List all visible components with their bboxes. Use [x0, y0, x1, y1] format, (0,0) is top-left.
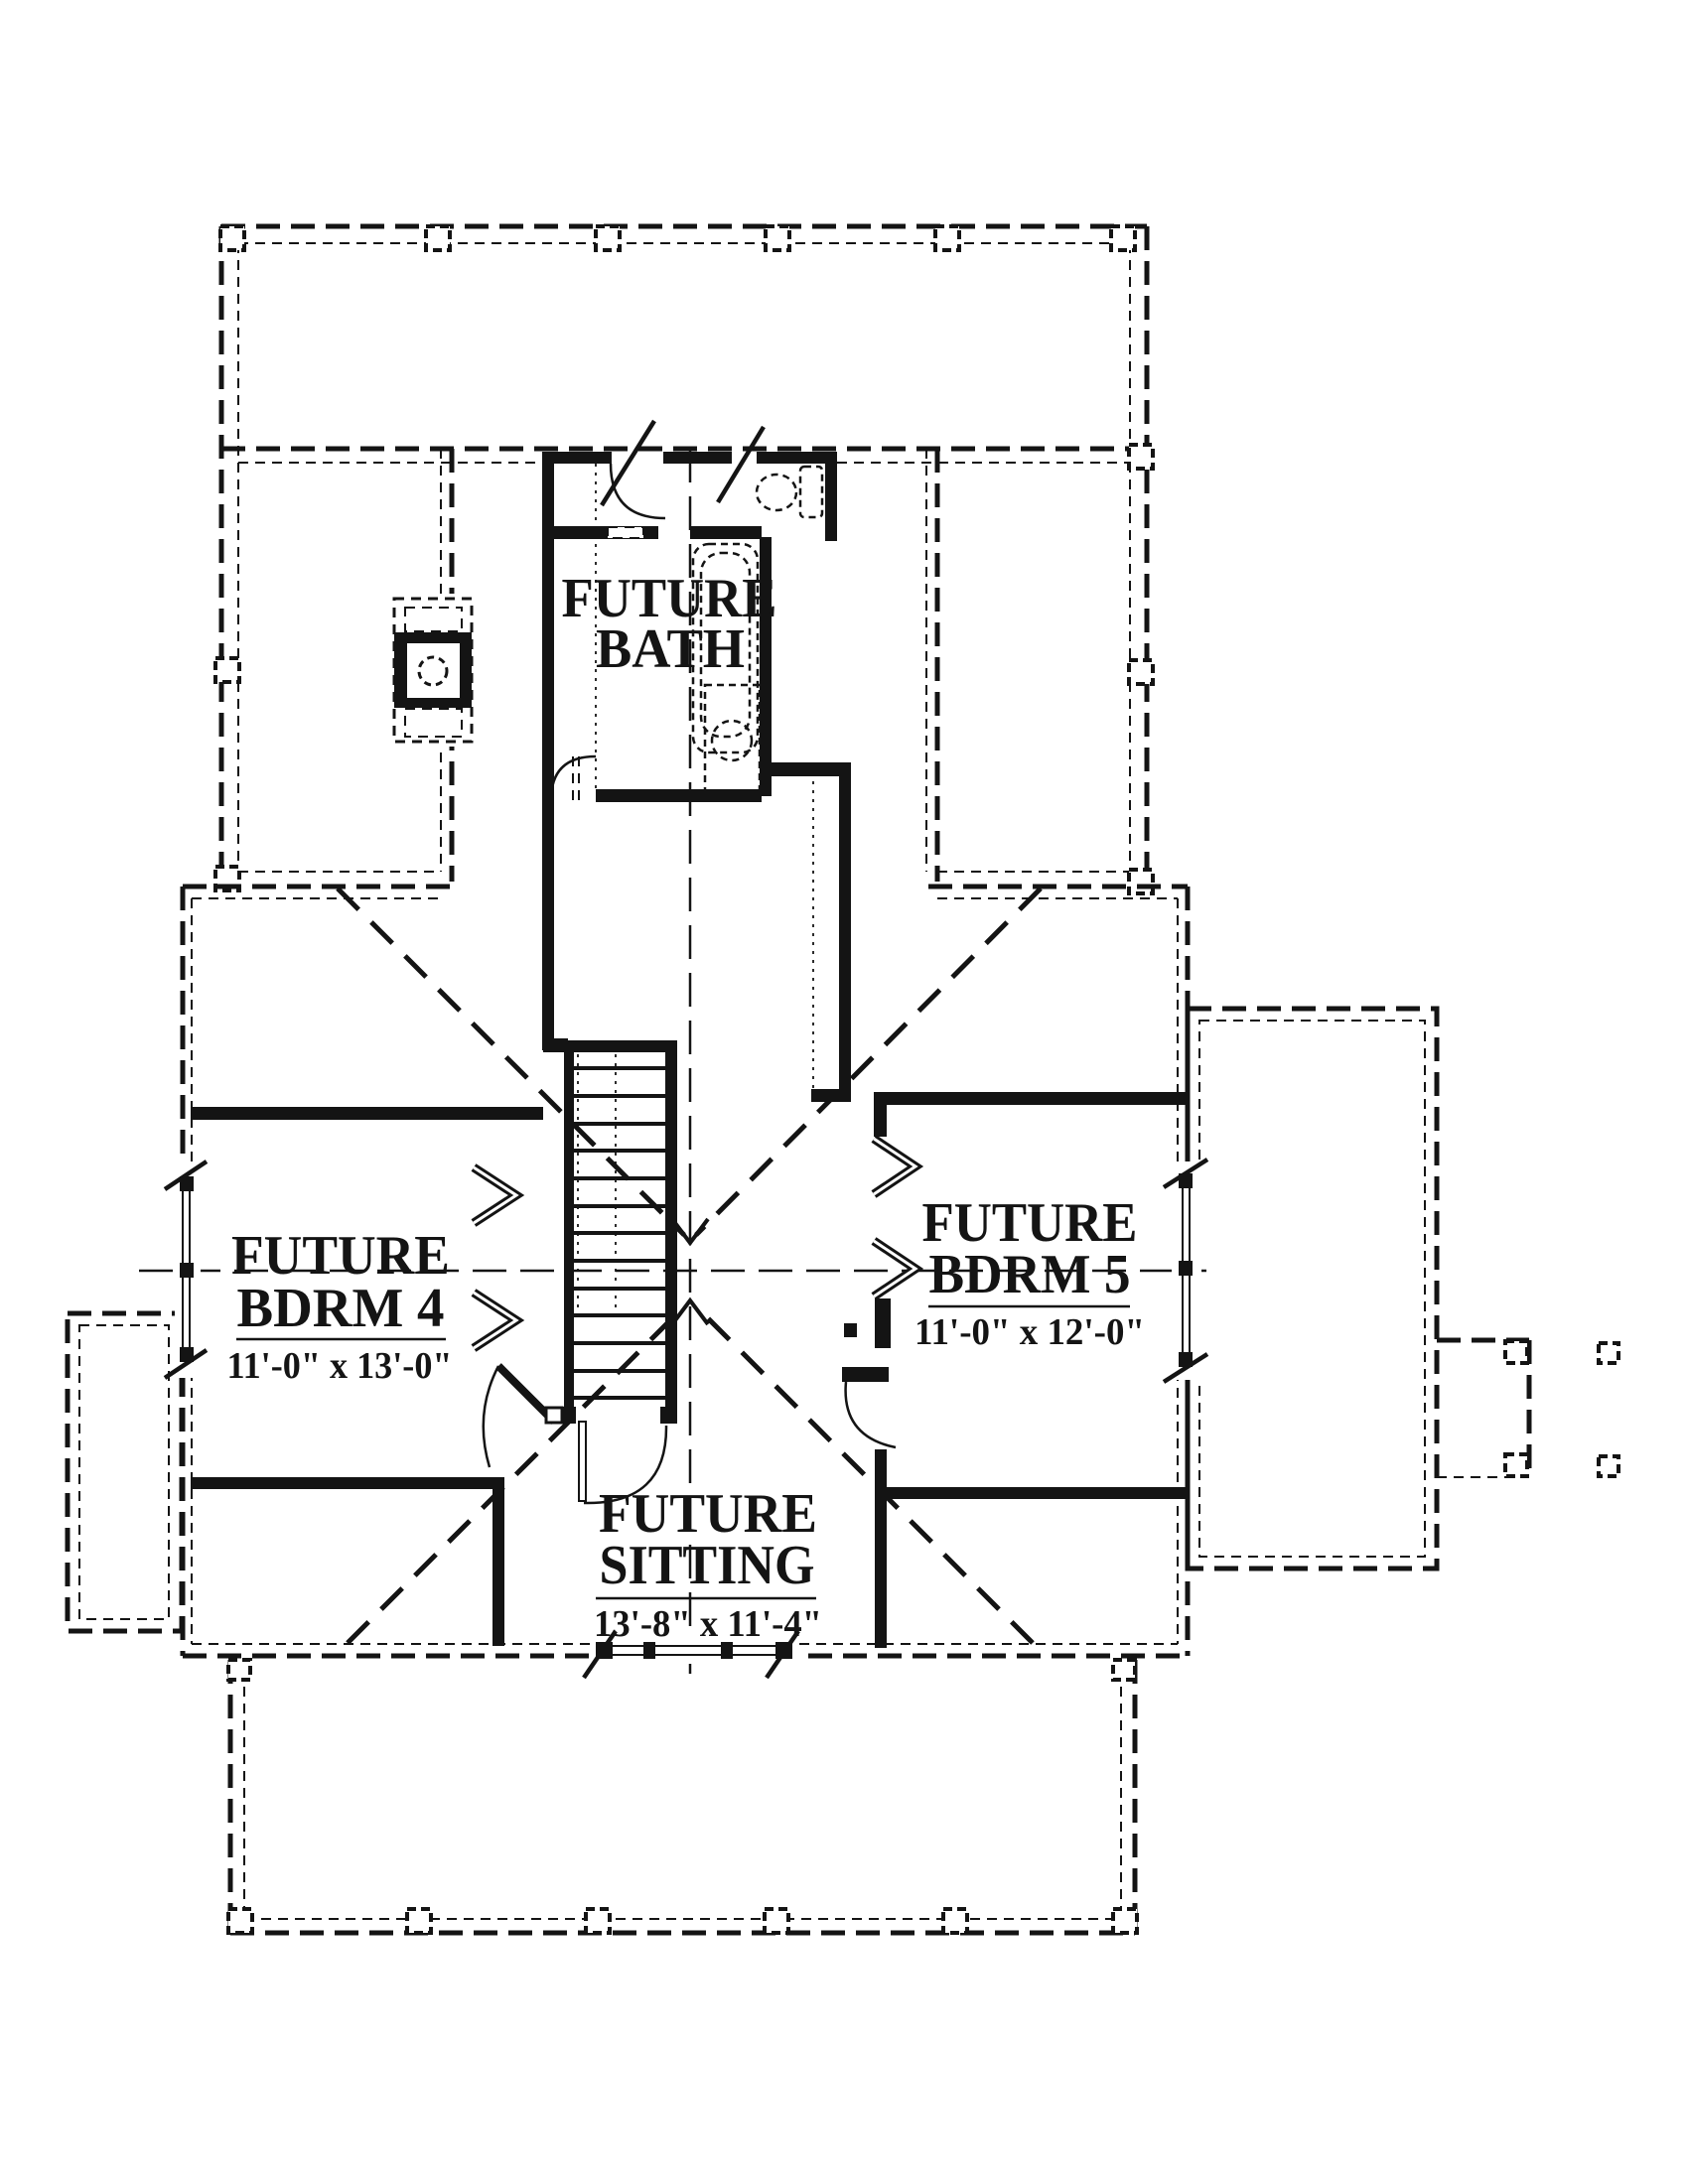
- bdrm5-label: FUTURE BDRM 5 11'-0" x 12'-0": [914, 1192, 1145, 1353]
- upper-porch-outline: [221, 226, 1147, 887]
- bdrm4-label: FUTURE BDRM 4 11'-0" x 13'-0": [227, 1225, 453, 1387]
- lower-porch-posts: [228, 1660, 1137, 1933]
- right-bumpout-outline: [1188, 1009, 1437, 1569]
- bath-label-line2: BATH: [596, 618, 745, 680]
- landing-door: [551, 756, 596, 800]
- bdrm5-dims: 11'-0" x 12'-0": [914, 1311, 1145, 1353]
- bath-entry-door: [602, 421, 764, 518]
- bdrm4-door: [484, 1366, 562, 1467]
- bdrm4-dims: 11'-0" x 13'-0": [227, 1345, 453, 1387]
- lower-porch-outline: [230, 1660, 1135, 1933]
- sink-fixture: [705, 685, 760, 792]
- sitting-dims: 13'-8" x 11'-4": [594, 1603, 822, 1645]
- staircase: [543, 1040, 677, 1424]
- left-bumpout-outline: [68, 1313, 182, 1631]
- bath-label: FUTURE BATH: [562, 568, 777, 680]
- floor-plan-page: FUTURE BATH FUTURE BDRM 4 11'-0" x 13'-0…: [0, 0, 1688, 2184]
- bdrm5-door: [842, 1367, 896, 1447]
- sitting-label: FUTURE SITTING 13'-8" x 11'-4": [594, 1483, 822, 1645]
- bdrm4-door-jambs: [474, 1167, 516, 1348]
- chimney: [387, 594, 479, 747]
- floor-plan-drawing: FUTURE BATH FUTURE BDRM 4 11'-0" x 13'-0…: [0, 0, 1688, 2184]
- toilet-fixture: [757, 467, 822, 517]
- sitting-label-line2: SITTING: [600, 1535, 815, 1596]
- bdrm5-door-jambs: [874, 1139, 915, 1297]
- bdrm5-label-line2: BDRM 5: [929, 1244, 1131, 1305]
- right-porch-outline: [1437, 1340, 1618, 1477]
- bdrm4-label-line2: BDRM 4: [237, 1278, 445, 1339]
